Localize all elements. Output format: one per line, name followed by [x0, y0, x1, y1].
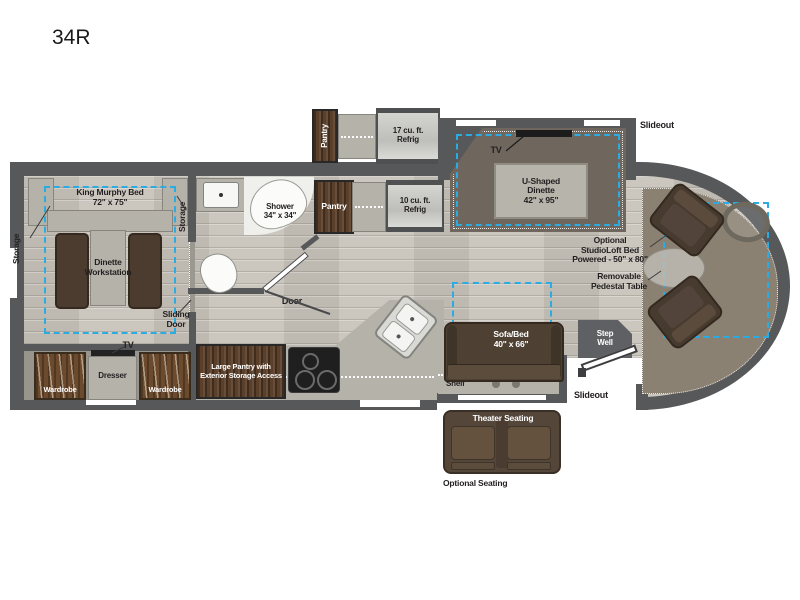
large-pantry-label: Large Pantry with Exterior Storage Acces…: [200, 363, 282, 380]
pedestal-table-label: Removable Pedestal Table: [584, 272, 654, 291]
window-sofa-slideout: [458, 395, 546, 400]
optional-seating-label: Optional Seating: [443, 479, 535, 489]
optional-pantry-label: Pantry: [321, 124, 330, 148]
bath-door-label: Door: [274, 296, 310, 306]
refrigerator-17[interactable]: 17 cu. ft. Refrig: [376, 108, 440, 164]
bath-pantry[interactable]: Pantry: [314, 180, 354, 234]
theater-seat-right: [507, 426, 551, 460]
sliding-door-label: Sliding Door: [150, 310, 202, 329]
u-dinette-label: U-Shaped Dinette 42" x 95": [522, 177, 560, 206]
king-bed-label: King Murphy Bed 72" x 75": [48, 188, 172, 207]
slideout-bottom-label: Slideout: [574, 390, 634, 400]
theater-footrest-right: [507, 462, 551, 470]
floorplan-canvas: 34R Dinette Workstation King Murphy Bed …: [0, 0, 800, 600]
dinette-workstation-label: Dinette Workstation: [85, 258, 132, 277]
plan-title: 34R: [52, 26, 91, 50]
window-kitchen-wall: [360, 400, 420, 407]
wardrobe-left-label: Wardrobe: [36, 386, 84, 394]
bath-pantry-label: Pantry: [321, 202, 346, 212]
large-pantry[interactable]: Large Pantry with Exterior Storage Acces…: [196, 344, 286, 399]
theater-seating-label: Theater Seating: [447, 414, 559, 424]
optional-counter-dots: [341, 136, 373, 138]
theater-seat-left: [451, 426, 495, 460]
bedroom-tv-label: TV: [118, 340, 138, 350]
theater-console: [496, 416, 508, 468]
bedroom-chair-right[interactable]: [128, 233, 162, 309]
theater-footrest-left: [451, 462, 495, 470]
window-dinette-slideout-right: [584, 120, 620, 126]
cooktop[interactable]: [288, 347, 340, 393]
dinette-workstation-table[interactable]: Dinette Workstation: [90, 230, 126, 306]
refrigerator-10-label: 10 cu. ft. Refrig: [400, 197, 430, 215]
slideout-top-label: Slideout: [640, 120, 700, 130]
wall-bed-bath: [188, 176, 196, 242]
wardrobe-right-label: Wardrobe: [141, 386, 189, 394]
counter-mid-dots: [355, 206, 383, 208]
dinette-tv-label: TV: [486, 145, 506, 155]
bath-sink-drain: [219, 193, 223, 197]
refrigerator-17-label: 17 cu. ft. Refrig: [393, 127, 423, 145]
studioloft-label: Optional StudioLoft Bed Powered - 50" x …: [566, 236, 654, 265]
refrigerator-10[interactable]: 10 cu. ft. Refrig: [386, 180, 444, 232]
window-dinette-slideout-left: [456, 120, 496, 126]
dresser-label: Dresser: [89, 372, 136, 381]
window-bedroom-slideout: [86, 400, 136, 405]
storage-right-label: Storage: [178, 194, 188, 240]
burner-3: [317, 370, 337, 390]
entry-door-recess: [567, 358, 643, 414]
burner-2: [295, 370, 315, 390]
step-well-label: Step Well: [597, 330, 614, 348]
shower-label: Shower 34" x 34": [252, 203, 308, 221]
burner-1: [302, 353, 319, 370]
dinette-tv-bar: [516, 130, 572, 137]
sliding-door-track[interactable]: [189, 242, 195, 312]
sofa-label: Sofa/Bed 40" x 66": [468, 330, 554, 349]
optional-pantry[interactable]: Pantry: [312, 109, 338, 163]
bedroom-tv-bar: [91, 350, 135, 356]
storage-left-label: Storage: [12, 226, 22, 272]
entry-door-hinge: [578, 368, 586, 377]
sofa-back-band: [448, 364, 560, 379]
murphy-bed-headboard: [47, 210, 173, 232]
u-dinette-table[interactable]: U-Shaped Dinette 42" x 95": [494, 163, 588, 219]
